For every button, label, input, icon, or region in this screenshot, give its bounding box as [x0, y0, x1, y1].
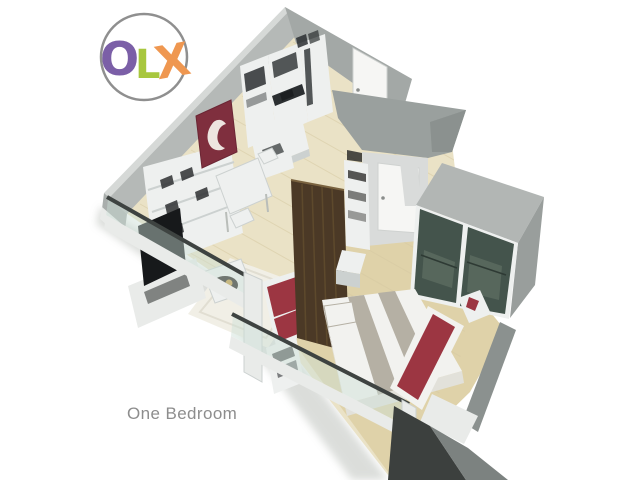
hall-shelf-column [344, 150, 370, 250]
door-handle [356, 88, 360, 92]
bed-pillow [324, 302, 356, 327]
listing-image: O L X One Bedroom [0, 0, 640, 480]
door-handle [381, 196, 385, 200]
floorplan-render: O L X One Bedroom [0, 0, 640, 480]
logo-letter-o: O [100, 32, 139, 86]
caption: One Bedroom [127, 404, 237, 423]
